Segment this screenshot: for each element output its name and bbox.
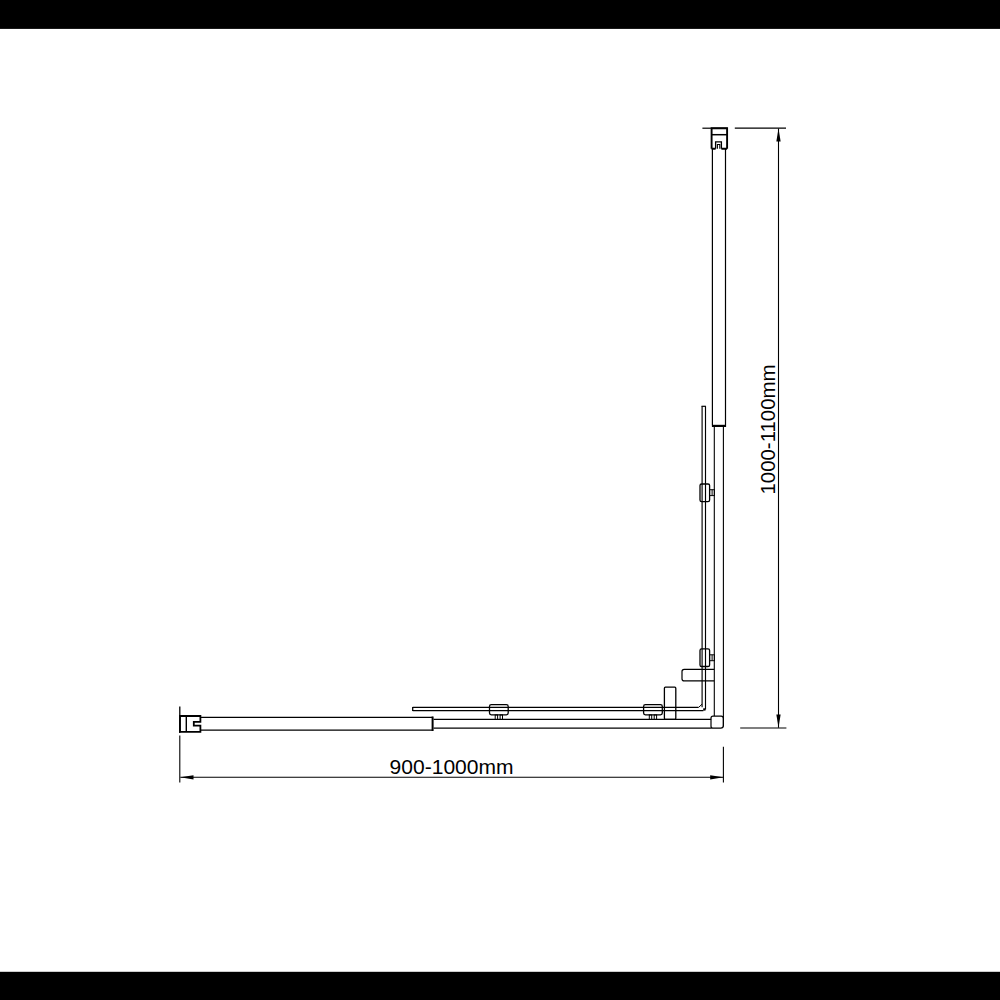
svg-text:900-1000mm: 900-1000mm: [390, 755, 514, 778]
svg-text:1000-1100mm: 1000-1100mm: [757, 365, 779, 495]
